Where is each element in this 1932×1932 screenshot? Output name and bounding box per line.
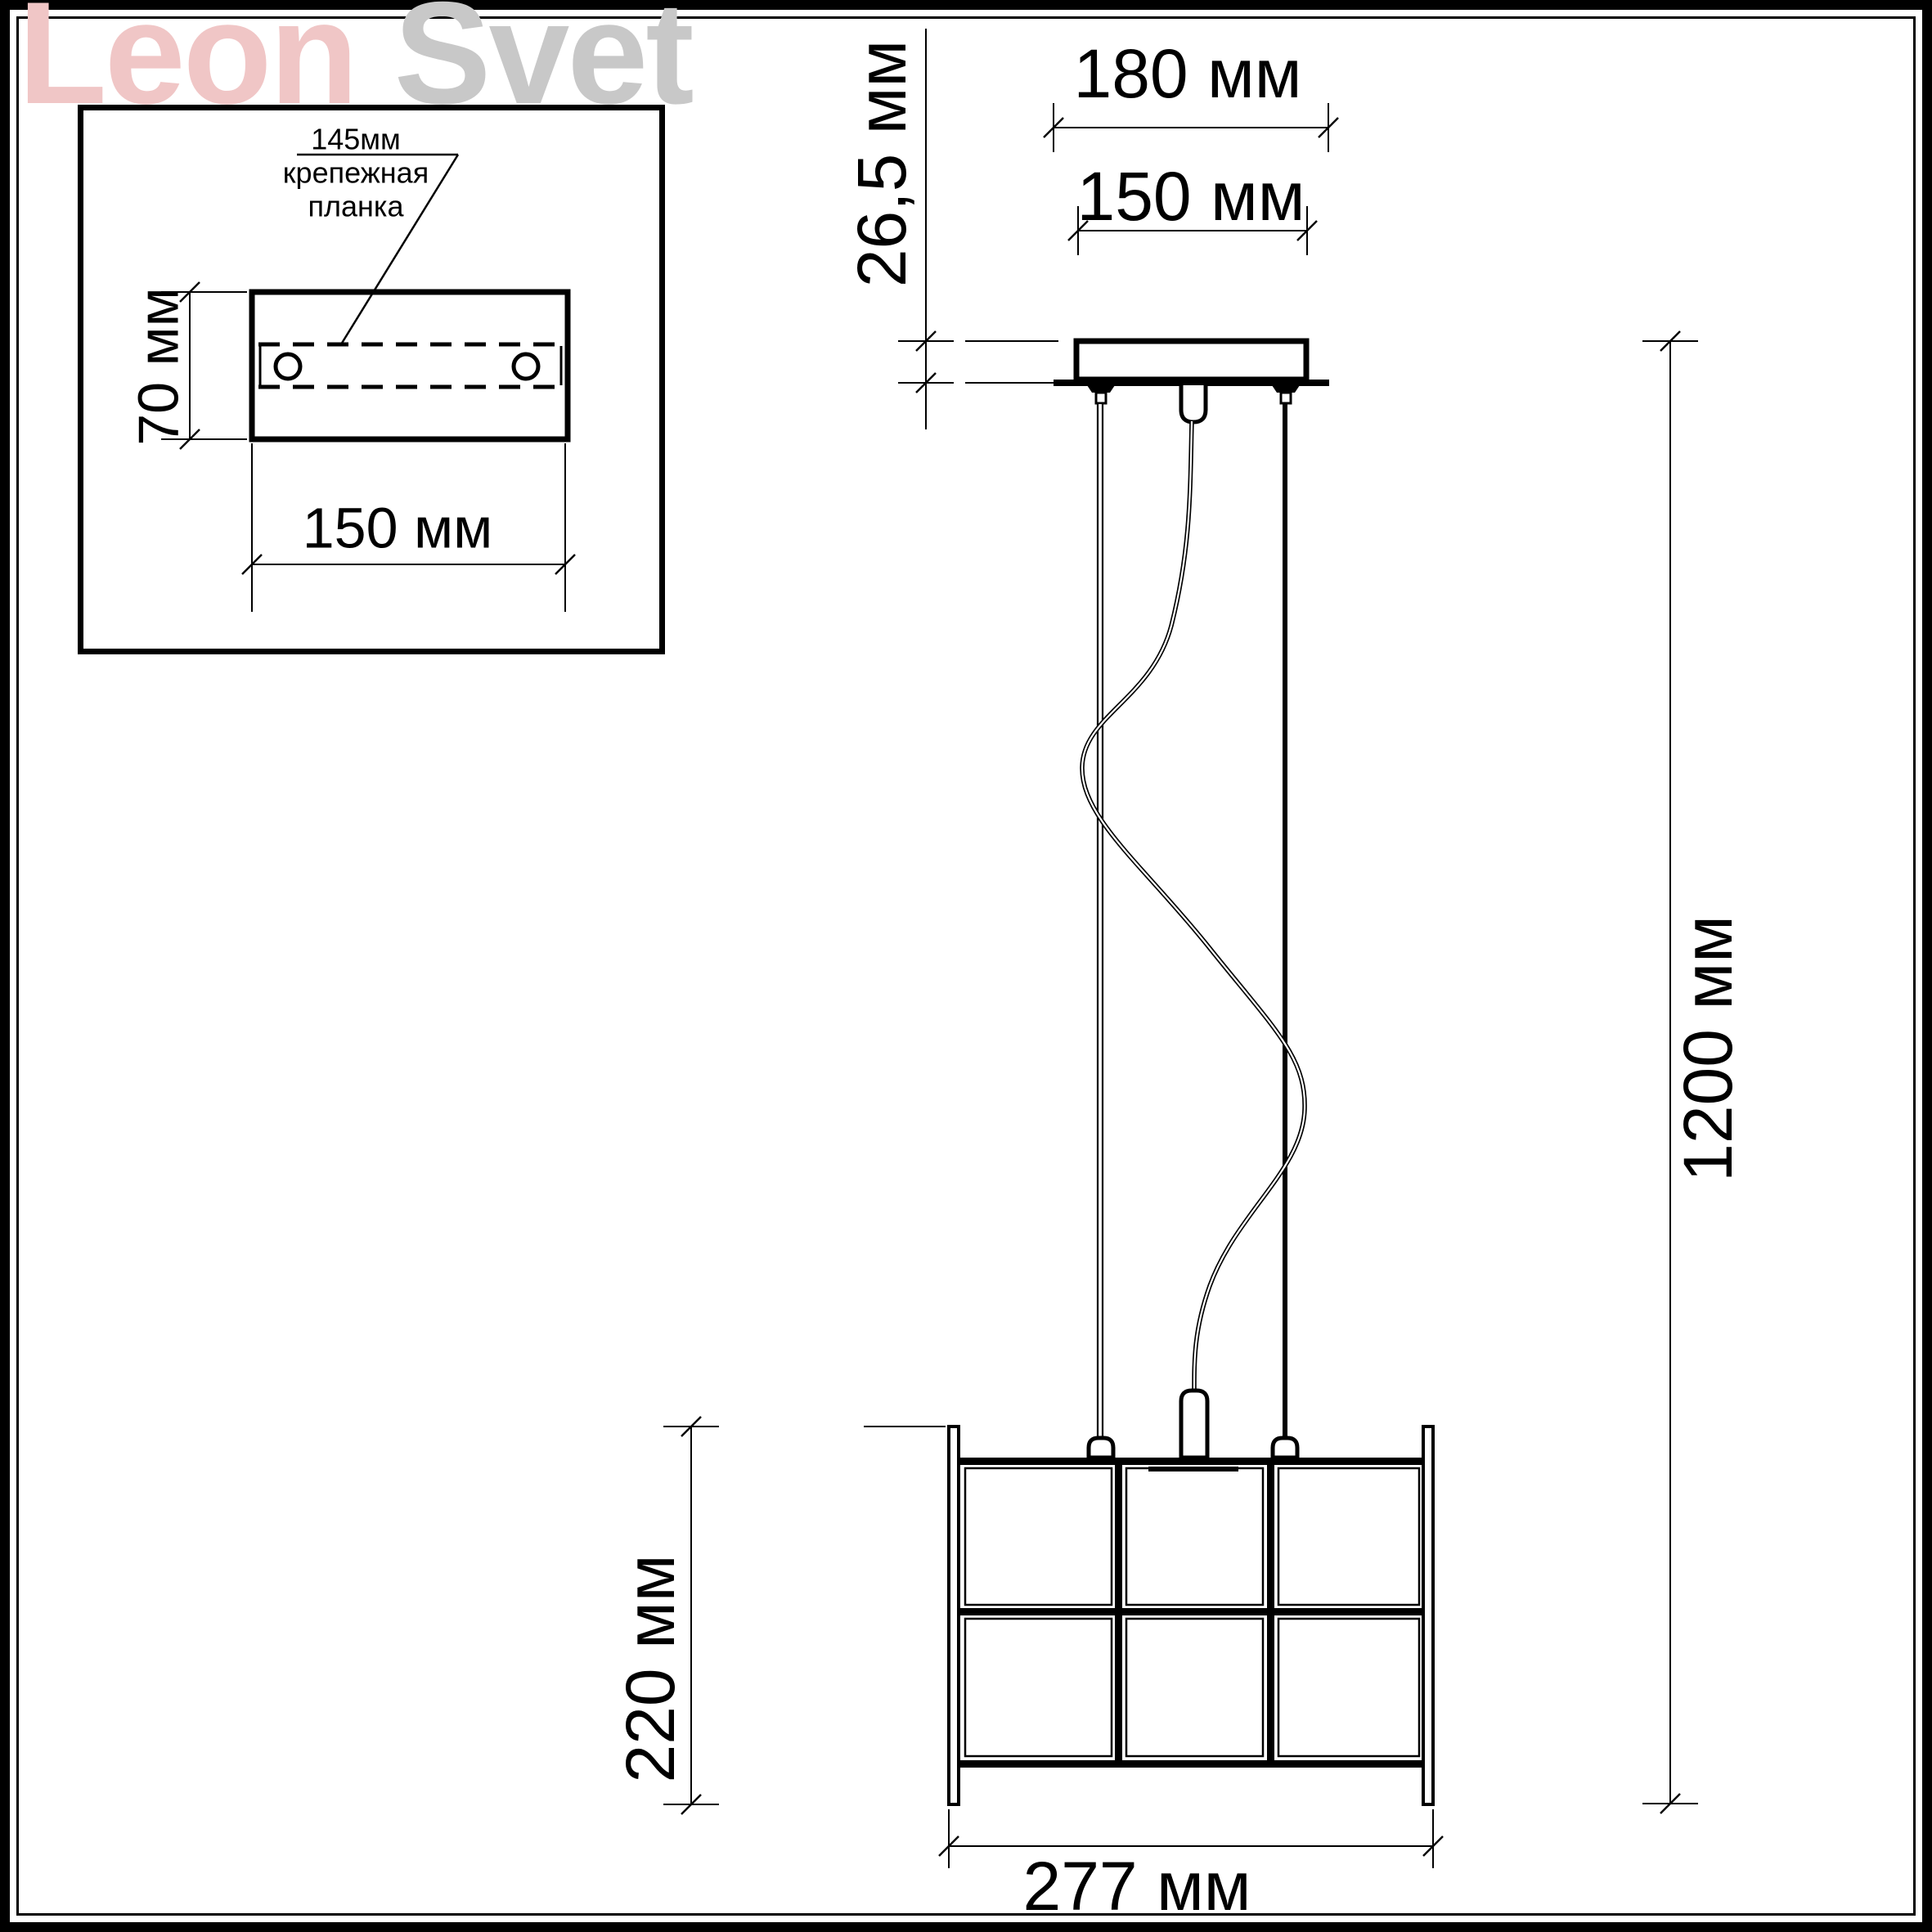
- shade-rail-bottom: [959, 1760, 1423, 1768]
- canopy-box: [1076, 341, 1306, 380]
- mounting-bar-leader-label: 145мм крепежная планка: [283, 123, 429, 223]
- shade-pane-2: [1126, 1468, 1263, 1605]
- leader-label-line3: планка: [283, 190, 429, 223]
- canopy-plate: [1054, 380, 1329, 386]
- shade-pane-5: [1126, 1619, 1263, 1756]
- shade-pane-1: [965, 1468, 1112, 1605]
- logo-word-svet: Svet: [394, 0, 692, 134]
- power-cord-inner: [1082, 421, 1305, 1391]
- logo-space: [356, 0, 393, 134]
- dim-label-180mm: 180 мм: [1074, 38, 1302, 110]
- shade-divider-2: [1267, 1458, 1274, 1768]
- shade-pane-3: [1278, 1468, 1419, 1605]
- dim-label-220mm: 220 мм: [614, 1555, 686, 1783]
- cord-grip: [1181, 385, 1206, 422]
- shade-rail-middle: [959, 1608, 1423, 1615]
- shade-divider-1: [1115, 1458, 1122, 1768]
- shade-cap-center: [1181, 1391, 1207, 1458]
- dim-label-1200mm: 1200 мм: [1672, 915, 1744, 1182]
- suspension-rod-left: [1098, 403, 1103, 1439]
- technical-drawing-canvas: Leon Svet 145мм крепежная планка 70 мм 1…: [0, 0, 1932, 1932]
- shade-cap-left: [1089, 1438, 1113, 1458]
- power-cord: [1082, 421, 1305, 1391]
- dim-label-277mm: 277 мм: [1023, 1850, 1251, 1922]
- leader-label-line2: крепежная: [283, 156, 429, 190]
- logo-word-leon: Leon: [18, 0, 356, 134]
- cord-mount-notch: [1148, 1467, 1238, 1471]
- watermark-logo: Leon Svet: [18, 0, 692, 126]
- dim-label-26-5mm: 26,5 мм: [846, 40, 918, 287]
- shade-pane-6: [1278, 1619, 1419, 1756]
- dim-label-150mm-inset: 150 мм: [303, 498, 493, 559]
- drawing-layer: [0, 0, 1932, 1932]
- canopy-stem-right: [1281, 393, 1291, 403]
- shade-side-plate-right: [1423, 1427, 1433, 1804]
- shade-pane-4: [965, 1619, 1112, 1756]
- dim-label-70mm: 70 мм: [128, 287, 189, 446]
- shade-cap-right: [1273, 1438, 1297, 1458]
- shade-side-plate-left: [949, 1427, 959, 1804]
- canopy-stem-left: [1096, 393, 1106, 403]
- dim-label-150mm-main: 150 мм: [1077, 160, 1305, 232]
